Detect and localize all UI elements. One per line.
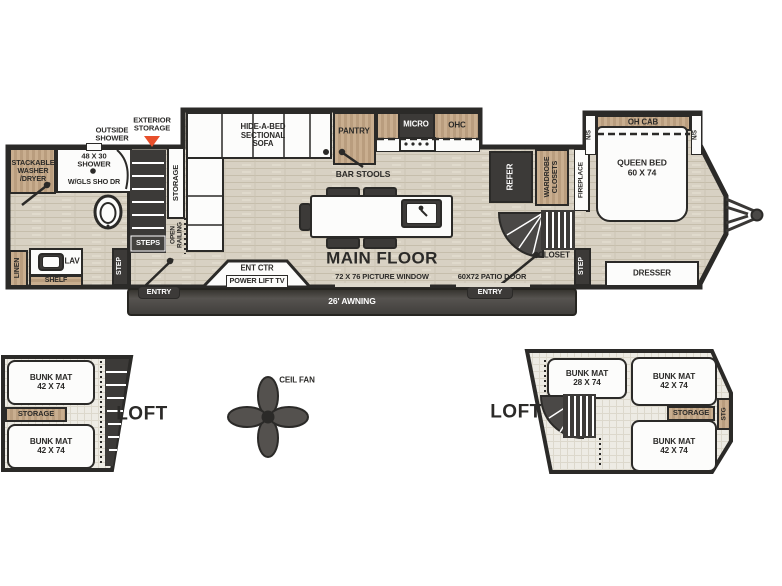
bar-stool-bottom-2 (363, 237, 397, 249)
right-loft-title: LOFT (490, 401, 542, 422)
outside-shower-callout: OUTSIDE SHOWER (95, 127, 128, 144)
bar-stools-label: BAR STOOLS (336, 170, 391, 180)
toilet-icon (95, 196, 121, 228)
left-loft-bunk-top-label: BUNK MAT 42 X 74 (30, 373, 72, 391)
ohc-label: OHC (448, 122, 465, 131)
island-sink-basin (406, 203, 437, 224)
closet-label: CLOSET (538, 252, 570, 261)
left-loft-title: LOFT (116, 403, 168, 424)
lav-label: LAV (64, 258, 79, 267)
picture-window-label: 72 X 76 PICTURE WINDOW (335, 273, 429, 281)
sofa-label: HIDE-A-BED SECTIONAL SOFA (241, 123, 286, 149)
ceiling-fan-label: CEIL FAN (279, 377, 315, 386)
steps-label: STEPS (136, 239, 160, 247)
range-cooktop (399, 137, 436, 152)
right-loft-bunk-bottom-label: BUNK MAT 42 X 74 (653, 437, 695, 455)
shower-door-label: W/GLS SHO DR (68, 178, 120, 186)
outside-shower-port (86, 143, 102, 151)
floorplan-canvas: STACKABLE WASHER /DRYER 48 X 30 SHOWER W… (0, 0, 782, 586)
dresser-label: DRESSER (633, 270, 671, 279)
washer-dryer-label: STACKABLE WASHER /DRYER (12, 159, 55, 183)
ns-left-label: N/S (587, 130, 594, 140)
storage-column-label: STORAGE (172, 165, 180, 201)
open-railing-label: OPEN RAILING (170, 222, 185, 248)
hitch-icon (726, 199, 763, 231)
queen-bed-label: QUEEN BED 60 X 74 (617, 158, 667, 177)
right-loft-stg-label: STG (720, 407, 727, 420)
right-loft-storage-label: STORAGE (673, 409, 709, 417)
ceiling-fan-icon (228, 377, 308, 457)
bar-stool-bottom-1 (326, 237, 360, 249)
ns-right-label: N/S (693, 130, 700, 140)
exterior-storage-marker-icon (144, 136, 160, 147)
patio-door-label: 60X72 PATIO DOOR (458, 273, 527, 281)
fireplace-label: FIREPLACE (577, 162, 584, 198)
pantry-cabinet (333, 112, 376, 165)
exterior-storage-callout: EXTERIOR STORAGE (133, 117, 171, 134)
refer-label: REFER (507, 164, 516, 191)
step-right-label: STEP (578, 257, 586, 275)
wardrobe-label: WARDROBE CLOSETS (544, 157, 560, 198)
step-left-label: STEP (116, 257, 124, 275)
right-loft-bunk-left-label: BUNK MAT 28 X 74 (566, 369, 608, 387)
lav-sink-basin (42, 256, 60, 268)
right-loft-bunk-top-label: BUNK MAT 42 X 74 (653, 372, 695, 390)
shelf-label: SHELF (45, 277, 67, 285)
linen-label: LINEN (14, 258, 22, 279)
left-loft-bunk-bottom-label: BUNK MAT 42 X 74 (30, 437, 72, 455)
power-lift-tv-label: POWER LIFT TV (229, 277, 284, 285)
entry-left-label: ENTRY (147, 288, 172, 296)
oh-cab-label: OH CAB (628, 119, 658, 128)
ent-ctr-label: ENT CTR (240, 265, 273, 274)
microwave-label: MICRO (403, 121, 429, 130)
main-floor-title: MAIN FLOOR (326, 248, 438, 267)
shower-size-label: 48 X 30 SHOWER (77, 153, 110, 170)
left-loft-storage-label: STORAGE (18, 410, 54, 418)
pantry-label: PANTRY (338, 128, 369, 137)
awning-label: 26' AWNING (328, 297, 375, 307)
entry-right-label: ENTRY (478, 288, 503, 296)
